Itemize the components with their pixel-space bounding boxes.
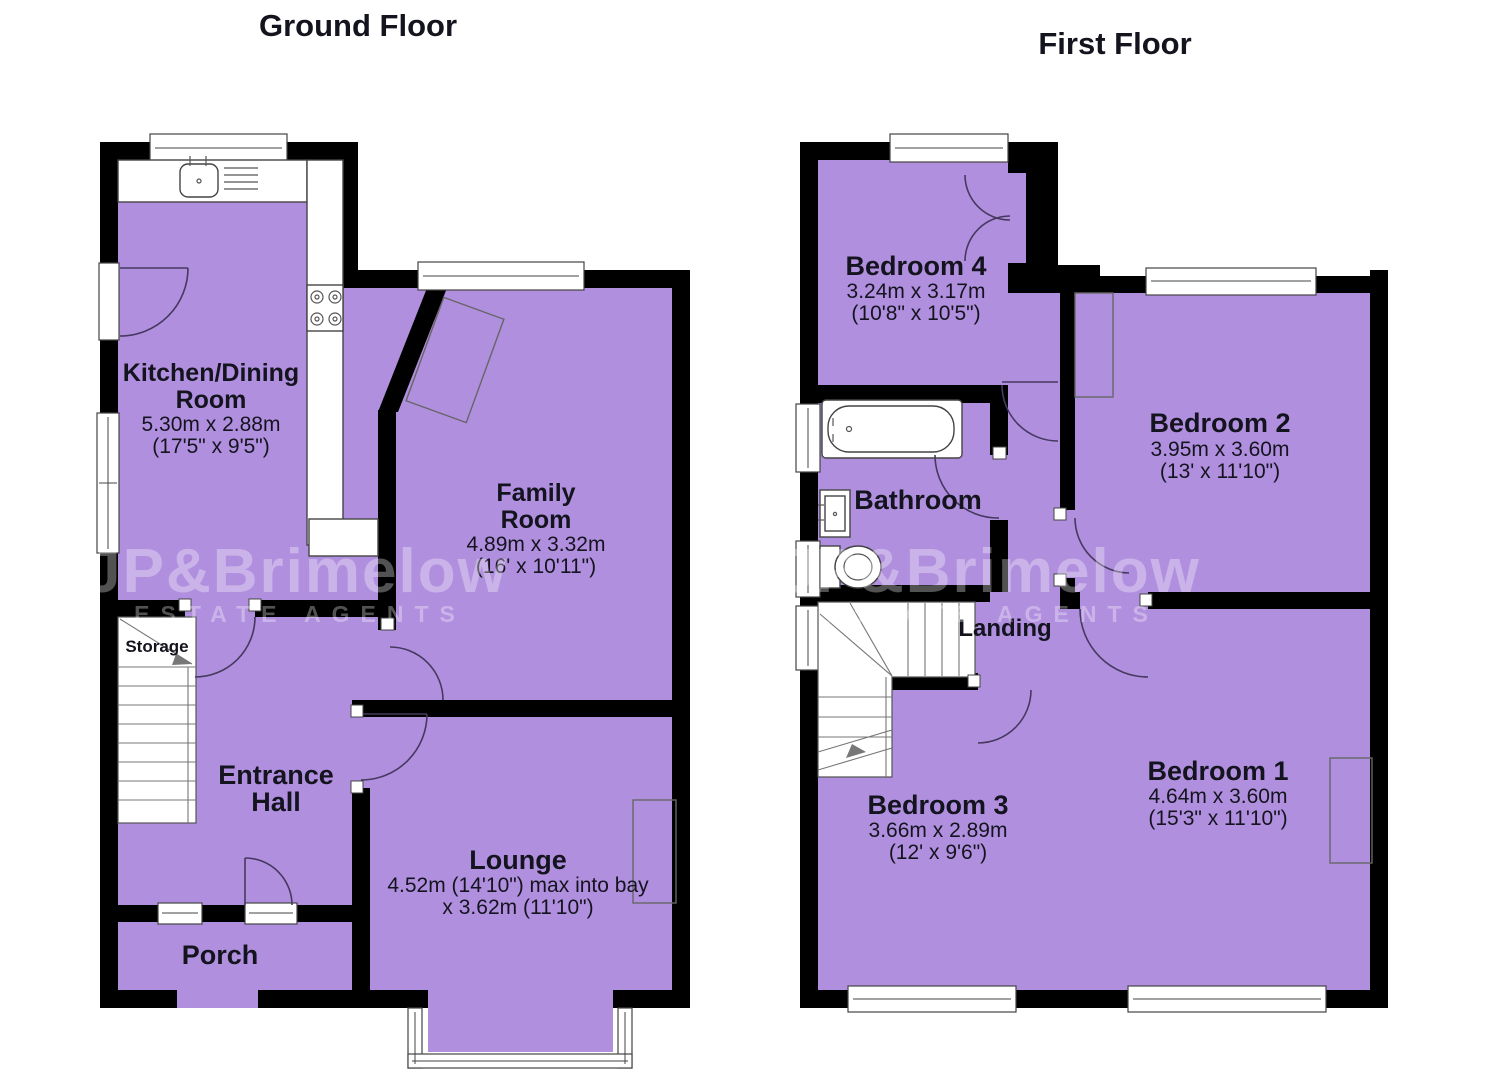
bathroom-label: Bathroom [854, 485, 982, 515]
entrance-hall-label: Entrance [218, 760, 334, 790]
floorplan-page: Kitchen/Dining Room 5.30m x 2.88m (17'5"… [0, 0, 1485, 1080]
bedroom4-label: Bedroom 4 [845, 251, 986, 281]
bedroom2-dim-metric: 3.95m x 3.60m [1151, 438, 1290, 461]
bedroom3-label: Bedroom 3 [867, 790, 1008, 820]
porch-label: Porch [182, 940, 259, 970]
family-room-window [418, 262, 584, 290]
bedroom3-dim-imperial: (12' x 9'6") [889, 841, 987, 864]
storage-label: Storage [125, 637, 188, 656]
bedroom4-window [890, 134, 1008, 162]
porch-door-opening [177, 990, 258, 1008]
bedroom1-window [1128, 986, 1326, 1012]
kitchen-dim-imperial: (17'5" x 9'5") [152, 435, 269, 458]
bathroom-window-upper [796, 404, 820, 472]
family-room-label: Family [496, 479, 575, 507]
family-room-label-line2: Room [501, 506, 572, 534]
bedroom3-dim-metric: 3.66m x 2.89m [869, 819, 1008, 842]
first-floor-title: First Floor [1038, 26, 1191, 61]
lounge-dim-line2: x 3.62m (11'10") [442, 896, 593, 919]
hob-icon [307, 285, 343, 331]
watermark-tagline-ground: ESTATE AGENTS [134, 601, 466, 627]
bedroom2-label: Bedroom 2 [1149, 408, 1290, 438]
bedroom1-dim-imperial: (15'3" x 11'10") [1148, 807, 1287, 830]
bedroom2-window [1146, 268, 1316, 295]
floorplan-drawing: Kitchen/Dining Room 5.30m x 2.88m (17'5"… [0, 0, 1485, 1080]
wash-basin-icon [818, 490, 850, 537]
bath-tub-icon [822, 400, 962, 458]
bedroom1-label: Bedroom 1 [1147, 756, 1288, 786]
bedroom3-window [848, 986, 1016, 1012]
lounge-dim-line1: 4.52m (14'10") max into bay [387, 874, 649, 897]
lounge-label: Lounge [469, 845, 566, 875]
kitchen-window [150, 134, 287, 162]
ground-floor-title: Ground Floor [259, 8, 457, 43]
entrance-hall-label-line2: Hall [251, 787, 301, 817]
porch-window [158, 903, 202, 924]
bedroom4-dim-imperial: (10'8" x 10'5") [851, 302, 980, 325]
porch-inner-door-panel [245, 903, 297, 924]
bedroom2-dim-imperial: (13' x 11'10") [1160, 460, 1280, 483]
bay-floor [428, 990, 613, 1052]
watermark-brand-ground: JP&Brimelow [86, 537, 508, 606]
kitchen-label-line2: Room [176, 386, 247, 414]
kitchen-label: Kitchen/Dining [123, 359, 299, 387]
kitchen-side-door-opening [99, 263, 119, 340]
landing-window [796, 606, 820, 670]
kitchen-dim-metric: 5.30m x 2.88m [142, 413, 281, 436]
kitchen-side-window [97, 413, 119, 553]
watermark-brand-first: JP&Brimelow [779, 537, 1201, 606]
bedroom1-dim-metric: 4.64m x 3.60m [1149, 785, 1288, 808]
watermark-tagline-first: ESTATE AGENTS [827, 601, 1159, 627]
bedroom4-dim-metric: 3.24m x 3.17m [847, 280, 986, 303]
